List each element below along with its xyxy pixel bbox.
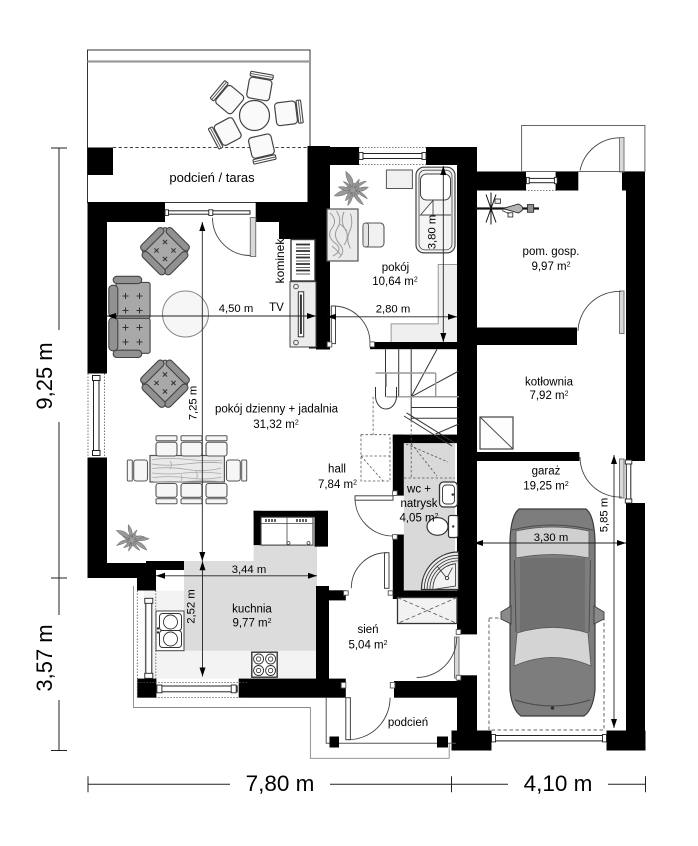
svg-text:kominek: kominek [273,238,287,284]
svg-text:7,25 m: 7,25 m [188,386,200,421]
svg-text:sień: sień [357,624,378,636]
svg-text:3,80 m: 3,80 m [427,215,439,250]
svg-text:pom. gosp.: pom. gosp. [523,246,580,258]
svg-text:4,50 m: 4,50 m [219,303,254,315]
svg-text:19,25 m2: 19,25 m2 [523,481,569,493]
svg-text:31,32 m2: 31,32 m2 [253,419,299,431]
svg-text:kotłownia: kotłownia [525,377,574,389]
svg-text:TV: TV [269,302,284,314]
svg-text:4,05 m2: 4,05 m2 [399,513,438,525]
svg-text:9,25 m: 9,25 m [32,342,57,409]
svg-text:wc +: wc + [406,484,431,496]
svg-text:3,57 m: 3,57 m [32,624,57,691]
svg-text:9,77 m2: 9,77 m2 [232,618,271,630]
svg-text:pokój dzienny + jadalnia: pokój dzienny + jadalnia [215,404,339,416]
svg-text:natrysk: natrysk [400,498,437,510]
svg-text:pokój: pokój [382,262,410,274]
svg-text:5,85 m: 5,85 m [599,498,611,533]
svg-text:7,92 m2: 7,92 m2 [529,390,568,402]
svg-text:kuchnia: kuchnia [232,604,272,616]
svg-text:garaż: garaż [532,466,561,478]
svg-text:hall: hall [328,464,346,476]
svg-text:10,64 m2: 10,64 m2 [372,276,418,288]
svg-text:podcień / taras: podcień / taras [169,170,255,185]
svg-text:9,97 m2: 9,97 m2 [531,261,570,273]
svg-text:podcień: podcień [388,717,428,729]
svg-text:7,80 m: 7,80 m [246,771,315,796]
svg-text:7,84 m2: 7,84 m2 [318,479,357,491]
svg-text:2,80 m: 2,80 m [376,304,411,316]
svg-text:5,04 m2: 5,04 m2 [348,640,387,652]
svg-text:4,10 m: 4,10 m [524,771,593,796]
svg-text:3,44 m: 3,44 m [232,564,267,576]
svg-text:3,30 m: 3,30 m [534,532,569,544]
svg-text:2,52 m: 2,52 m [186,589,198,624]
